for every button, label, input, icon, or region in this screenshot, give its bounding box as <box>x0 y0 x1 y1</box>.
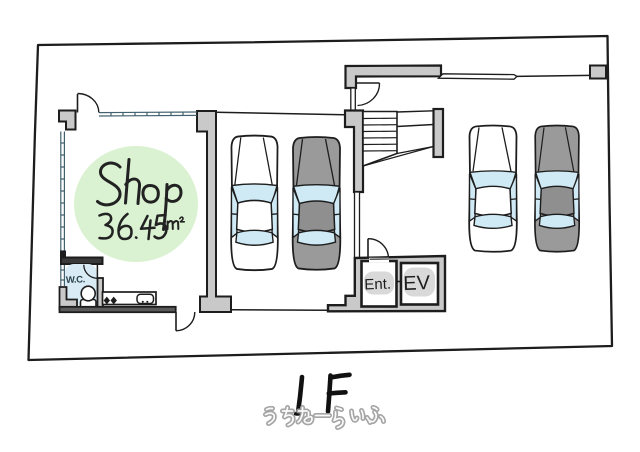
svg-text:EV: EV <box>403 272 431 295</box>
svg-text:Ent.: Ent. <box>364 276 391 294</box>
svg-text:W.C.: W.C. <box>66 274 85 286</box>
